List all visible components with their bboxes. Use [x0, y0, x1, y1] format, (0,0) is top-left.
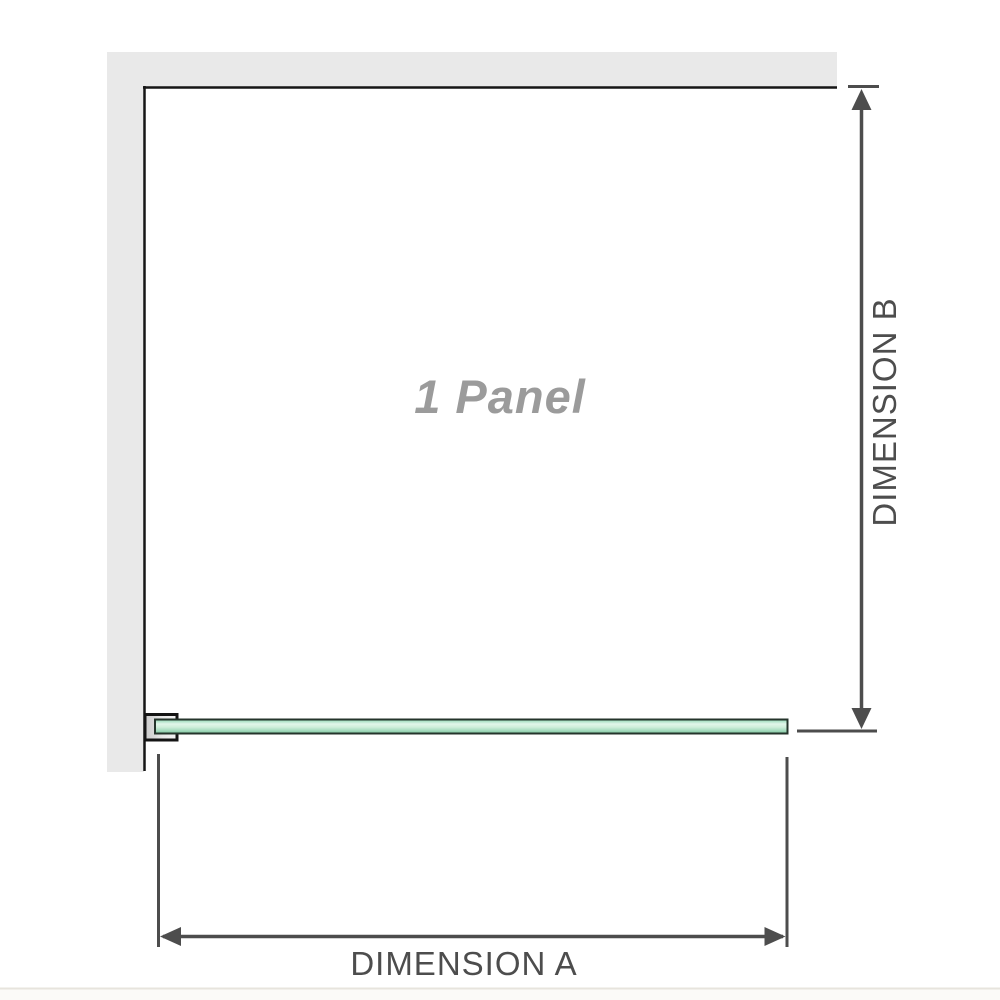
dim-a-arrowhead-left	[160, 927, 181, 946]
dim-b-arrowhead-bottom	[852, 708, 872, 729]
dimension-a-label: DIMENSION A	[350, 945, 577, 982]
dimension-b-label: DIMENSION B	[866, 297, 903, 526]
dim-b-arrowhead-top	[852, 89, 872, 110]
product-diagram: 1 Panel DIMENSION B DIMENSION A	[0, 0, 1000, 1000]
page-below-divider	[0, 989, 1000, 1000]
glass-panel	[155, 720, 788, 734]
dim-a-arrowhead-right	[765, 927, 786, 946]
panel-label: 1 Panel	[414, 370, 586, 423]
diagram-canvas: 1 Panel DIMENSION B DIMENSION A	[0, 0, 1000, 1000]
wall-top	[107, 52, 837, 87]
wall-left	[107, 52, 144, 772]
